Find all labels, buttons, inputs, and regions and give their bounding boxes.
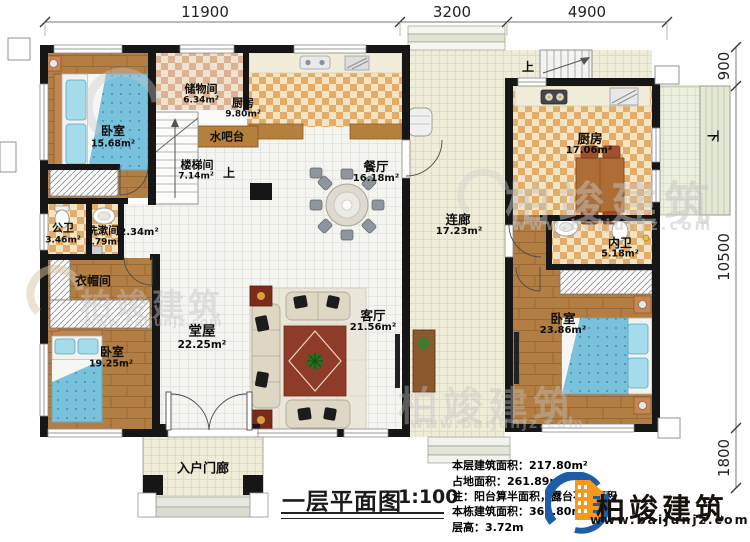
- bedroom1-area: 15.68m²: [91, 139, 135, 149]
- washroom-label: 洗漱间: [87, 226, 119, 237]
- exterior-staircase-top: [540, 50, 592, 80]
- bed-bedroom2: [46, 318, 102, 422]
- stairwell-area: 7.14m²: [178, 173, 214, 182]
- living-area: 21.56m²: [350, 323, 396, 333]
- ensuite-label: 内卫: [608, 237, 632, 249]
- bedroom1-label: 卧室: [101, 125, 125, 137]
- publicbath-area: 3.46m²: [45, 237, 81, 246]
- dim-right-1: 900: [715, 52, 733, 81]
- publicbath-label: 公卫: [52, 223, 74, 234]
- stairwell-label: 楼梯间: [181, 160, 214, 171]
- dim-right-3: 1800: [715, 439, 733, 477]
- closet-cloakroom: [50, 258, 70, 300]
- dining-label: 餐厅: [363, 161, 388, 174]
- dim-top-1: 11900: [181, 3, 229, 21]
- bedroom3-area: 23.86m²: [540, 326, 586, 336]
- plan-title: 一层平面图: [282, 482, 402, 516]
- stairs-up2-label: 上: [522, 61, 534, 73]
- living-label: 客厅: [360, 310, 385, 323]
- kitchen2-label: 厨房: [577, 133, 602, 146]
- storage-area: 6.34m²: [183, 97, 219, 106]
- floorplan-canvas: 卧室 15.68m² 储物间 6.34m² 厨房 9.80m² 水吧台 楼梯间 …: [0, 0, 750, 542]
- corridor-appliance: [408, 108, 432, 136]
- closet-bedroom1: [50, 166, 118, 196]
- kitchen1-area: 9.80m²: [225, 111, 261, 120]
- dim-top-2: 3200: [433, 3, 471, 21]
- watermark-url-1: www.baijunjz.com: [512, 216, 713, 234]
- bedroom2-label: 卧室: [100, 346, 124, 358]
- dining-area: 16.18m²: [353, 174, 399, 184]
- bedroom2-area: 19.25m²: [89, 359, 133, 369]
- corridor-label: 连廊: [445, 214, 470, 227]
- note-floor-height: 层高：3.72m: [452, 519, 524, 535]
- title-underline: [281, 512, 444, 519]
- cloakroom-label: 衣帽间: [75, 275, 111, 287]
- bedroom3-label: 卧室: [550, 313, 575, 326]
- note-floor-area: 本层建筑面积：217.80m²: [452, 457, 588, 473]
- washroom-area: 1.79m²: [85, 239, 121, 248]
- corridor-area: 17.23m²: [436, 227, 482, 237]
- mainhall-area: 22.25m²: [178, 340, 227, 351]
- closet-bedroom3: [560, 270, 652, 294]
- dim-right-2: 10500: [715, 233, 733, 281]
- kitchen2-area: 17.06m²: [566, 146, 612, 156]
- waterbar-label: 水吧台: [210, 131, 245, 143]
- brand-logo-url: www.baijunjz.com: [590, 512, 750, 527]
- mainhall-label: 堂屋: [189, 325, 216, 339]
- dim-top-3: 4900: [568, 3, 606, 21]
- corridor-top-landing: [408, 26, 505, 50]
- watermark-url-3: www.baijunjz.com: [410, 416, 585, 432]
- stairs-up-label: 上: [223, 167, 235, 179]
- stairs-down-label: 下: [707, 130, 719, 142]
- plan-scale: 1:100: [398, 486, 458, 508]
- storage-label: 储物间: [185, 84, 218, 95]
- ensuite-area: 5.18m²: [601, 249, 639, 259]
- porch-label: 入户门廊: [177, 463, 229, 476]
- hallway-area: 2.34m²: [119, 228, 158, 238]
- kitchen1-label: 厨房: [232, 98, 254, 109]
- floorplan-drawing: [0, 0, 750, 542]
